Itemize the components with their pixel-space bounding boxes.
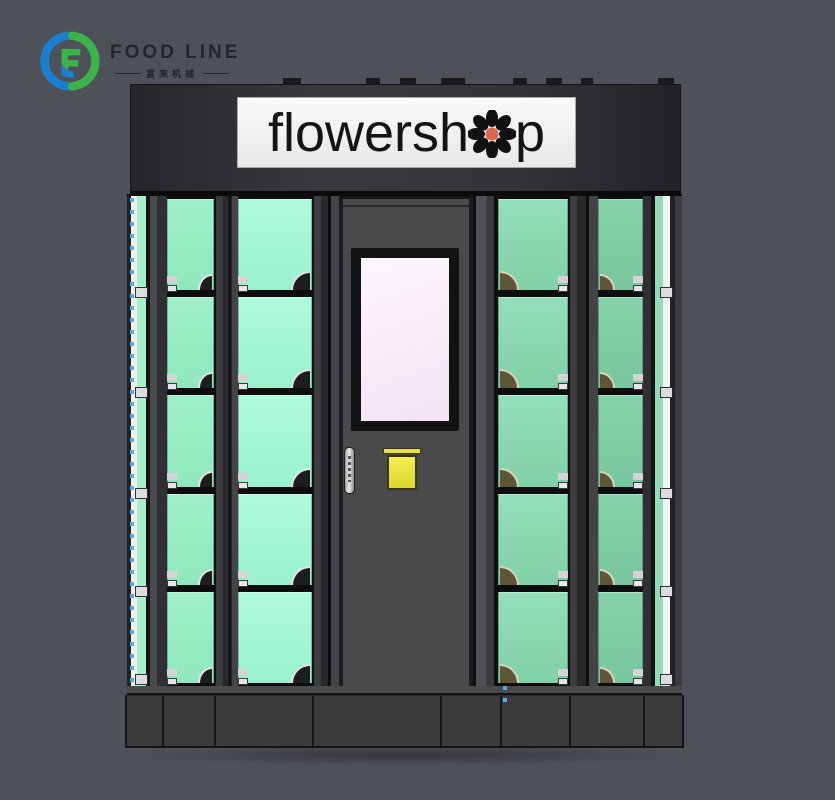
- base-panels: [125, 695, 684, 748]
- locker-door[interactable]: [498, 199, 568, 297]
- locker-door[interactable]: [598, 592, 643, 683]
- hinge-icon: [500, 271, 519, 290]
- latch-icon: [238, 580, 248, 587]
- locker-door[interactable]: [598, 494, 643, 592]
- touchscreen-display[interactable]: [361, 258, 449, 421]
- latch-icon: [633, 285, 643, 292]
- frame-pillar: [214, 196, 238, 686]
- locker-door[interactable]: [238, 297, 312, 395]
- hinge-icon: [600, 569, 615, 585]
- latch-icon: [238, 678, 248, 685]
- locker-door[interactable]: [238, 199, 312, 297]
- latch-icon: [167, 285, 177, 292]
- locker-door[interactable]: [167, 494, 214, 592]
- locker-door[interactable]: [498, 297, 568, 395]
- locker-door[interactable]: [598, 199, 643, 297]
- base-joint: [312, 696, 314, 746]
- cabinet-body: [127, 194, 682, 686]
- side-latch: [135, 586, 148, 597]
- flower-vending-machine: flowersh p: [125, 78, 684, 752]
- hinge-icon: [291, 664, 310, 683]
- locker-door[interactable]: [598, 395, 643, 493]
- base-rail: [127, 686, 682, 695]
- base-joint: [162, 696, 164, 746]
- base-joint: [440, 696, 442, 746]
- locker-door[interactable]: [167, 297, 214, 395]
- latch-icon: [167, 482, 177, 489]
- side-latch: [660, 586, 673, 597]
- locker-door[interactable]: [238, 494, 312, 592]
- locker-door[interactable]: [238, 592, 312, 683]
- hinge-icon: [600, 667, 615, 683]
- side-latch: [135, 287, 148, 298]
- locker-door[interactable]: [167, 592, 214, 683]
- latch-icon: [167, 383, 177, 390]
- latch-icon: [558, 580, 568, 587]
- side-latch: [660, 674, 673, 685]
- latch-icon: [558, 482, 568, 489]
- sign-text-right: p: [515, 102, 545, 164]
- hinge-icon: [198, 274, 212, 290]
- shop-sign: flowersh p: [237, 97, 576, 168]
- hinge-icon: [600, 372, 615, 388]
- latch-icon: [633, 383, 643, 390]
- frame-pillar: [312, 196, 339, 686]
- locker-column-left-outer: [167, 196, 214, 686]
- latch-icon: [633, 482, 643, 489]
- latch-icon: [167, 580, 177, 587]
- latch-icon: [633, 580, 643, 587]
- hinge-icon: [500, 468, 519, 487]
- base-joint: [569, 696, 571, 746]
- hinge-icon: [500, 664, 519, 683]
- locker-door[interactable]: [498, 395, 568, 493]
- dispenser-flap: [383, 448, 421, 454]
- hinge-icon: [291, 271, 310, 290]
- hinge-icon: [500, 369, 519, 388]
- side-panel-right: [643, 196, 682, 686]
- locker-column-right-outer: [598, 196, 643, 686]
- frame-pillar: [473, 196, 498, 686]
- base-plinth: [125, 686, 684, 752]
- hinge-icon: [198, 471, 212, 487]
- scene: FOOD LINE 富来机械 flowersh: [0, 0, 835, 800]
- touchscreen[interactable]: [351, 248, 459, 431]
- foodline-logo-icon: [40, 30, 100, 92]
- hinge-icon: [198, 372, 212, 388]
- latch-icon: [167, 678, 177, 685]
- floor-shadow: [131, 748, 678, 766]
- latch-icon: [558, 678, 568, 685]
- latch-icon: [238, 482, 248, 489]
- hinge-icon: [291, 369, 310, 388]
- led-strip: [130, 198, 134, 684]
- locker-door[interactable]: [498, 592, 568, 683]
- hinge-icon: [600, 274, 615, 290]
- latch-icon: [238, 285, 248, 292]
- base-joint: [214, 696, 216, 746]
- door-lock-handle[interactable]: [344, 447, 355, 494]
- latch-icon: [558, 383, 568, 390]
- side-latch: [660, 387, 673, 398]
- header-band: flowersh p: [130, 84, 681, 194]
- base-joint: [643, 696, 645, 746]
- frame-pillar: [568, 196, 598, 686]
- center-door: [339, 196, 473, 686]
- side-latch: [135, 674, 148, 685]
- locker-door[interactable]: [167, 199, 214, 297]
- flower-icon: [468, 110, 516, 158]
- hinge-icon: [198, 569, 212, 585]
- locker-door[interactable]: [167, 395, 214, 493]
- locker-door[interactable]: [238, 395, 312, 493]
- locker-door[interactable]: [498, 494, 568, 592]
- base-joint: [500, 696, 502, 746]
- brand-name: FOOD LINE: [110, 42, 240, 64]
- latch-icon: [558, 285, 568, 292]
- led-strip-extension: [503, 686, 507, 706]
- side-latch: [135, 488, 148, 499]
- side-latch: [660, 287, 673, 298]
- locker-column-right-inner: [498, 196, 568, 686]
- hinge-icon: [198, 667, 212, 683]
- dash-line: [203, 73, 229, 74]
- latch-icon: [238, 383, 248, 390]
- locker-door[interactable]: [598, 297, 643, 395]
- hinge-icon: [500, 566, 519, 585]
- yellow-button[interactable]: [387, 455, 417, 490]
- dash-line: [115, 73, 141, 74]
- side-latch: [135, 387, 148, 398]
- side-latch: [660, 488, 673, 499]
- hinge-icon: [600, 471, 615, 487]
- latch-icon: [633, 678, 643, 685]
- sign-text-left: flowersh: [268, 102, 469, 164]
- locker-column-left-inner: [238, 196, 312, 686]
- hinge-icon: [291, 566, 310, 585]
- hinge-icon: [291, 468, 310, 487]
